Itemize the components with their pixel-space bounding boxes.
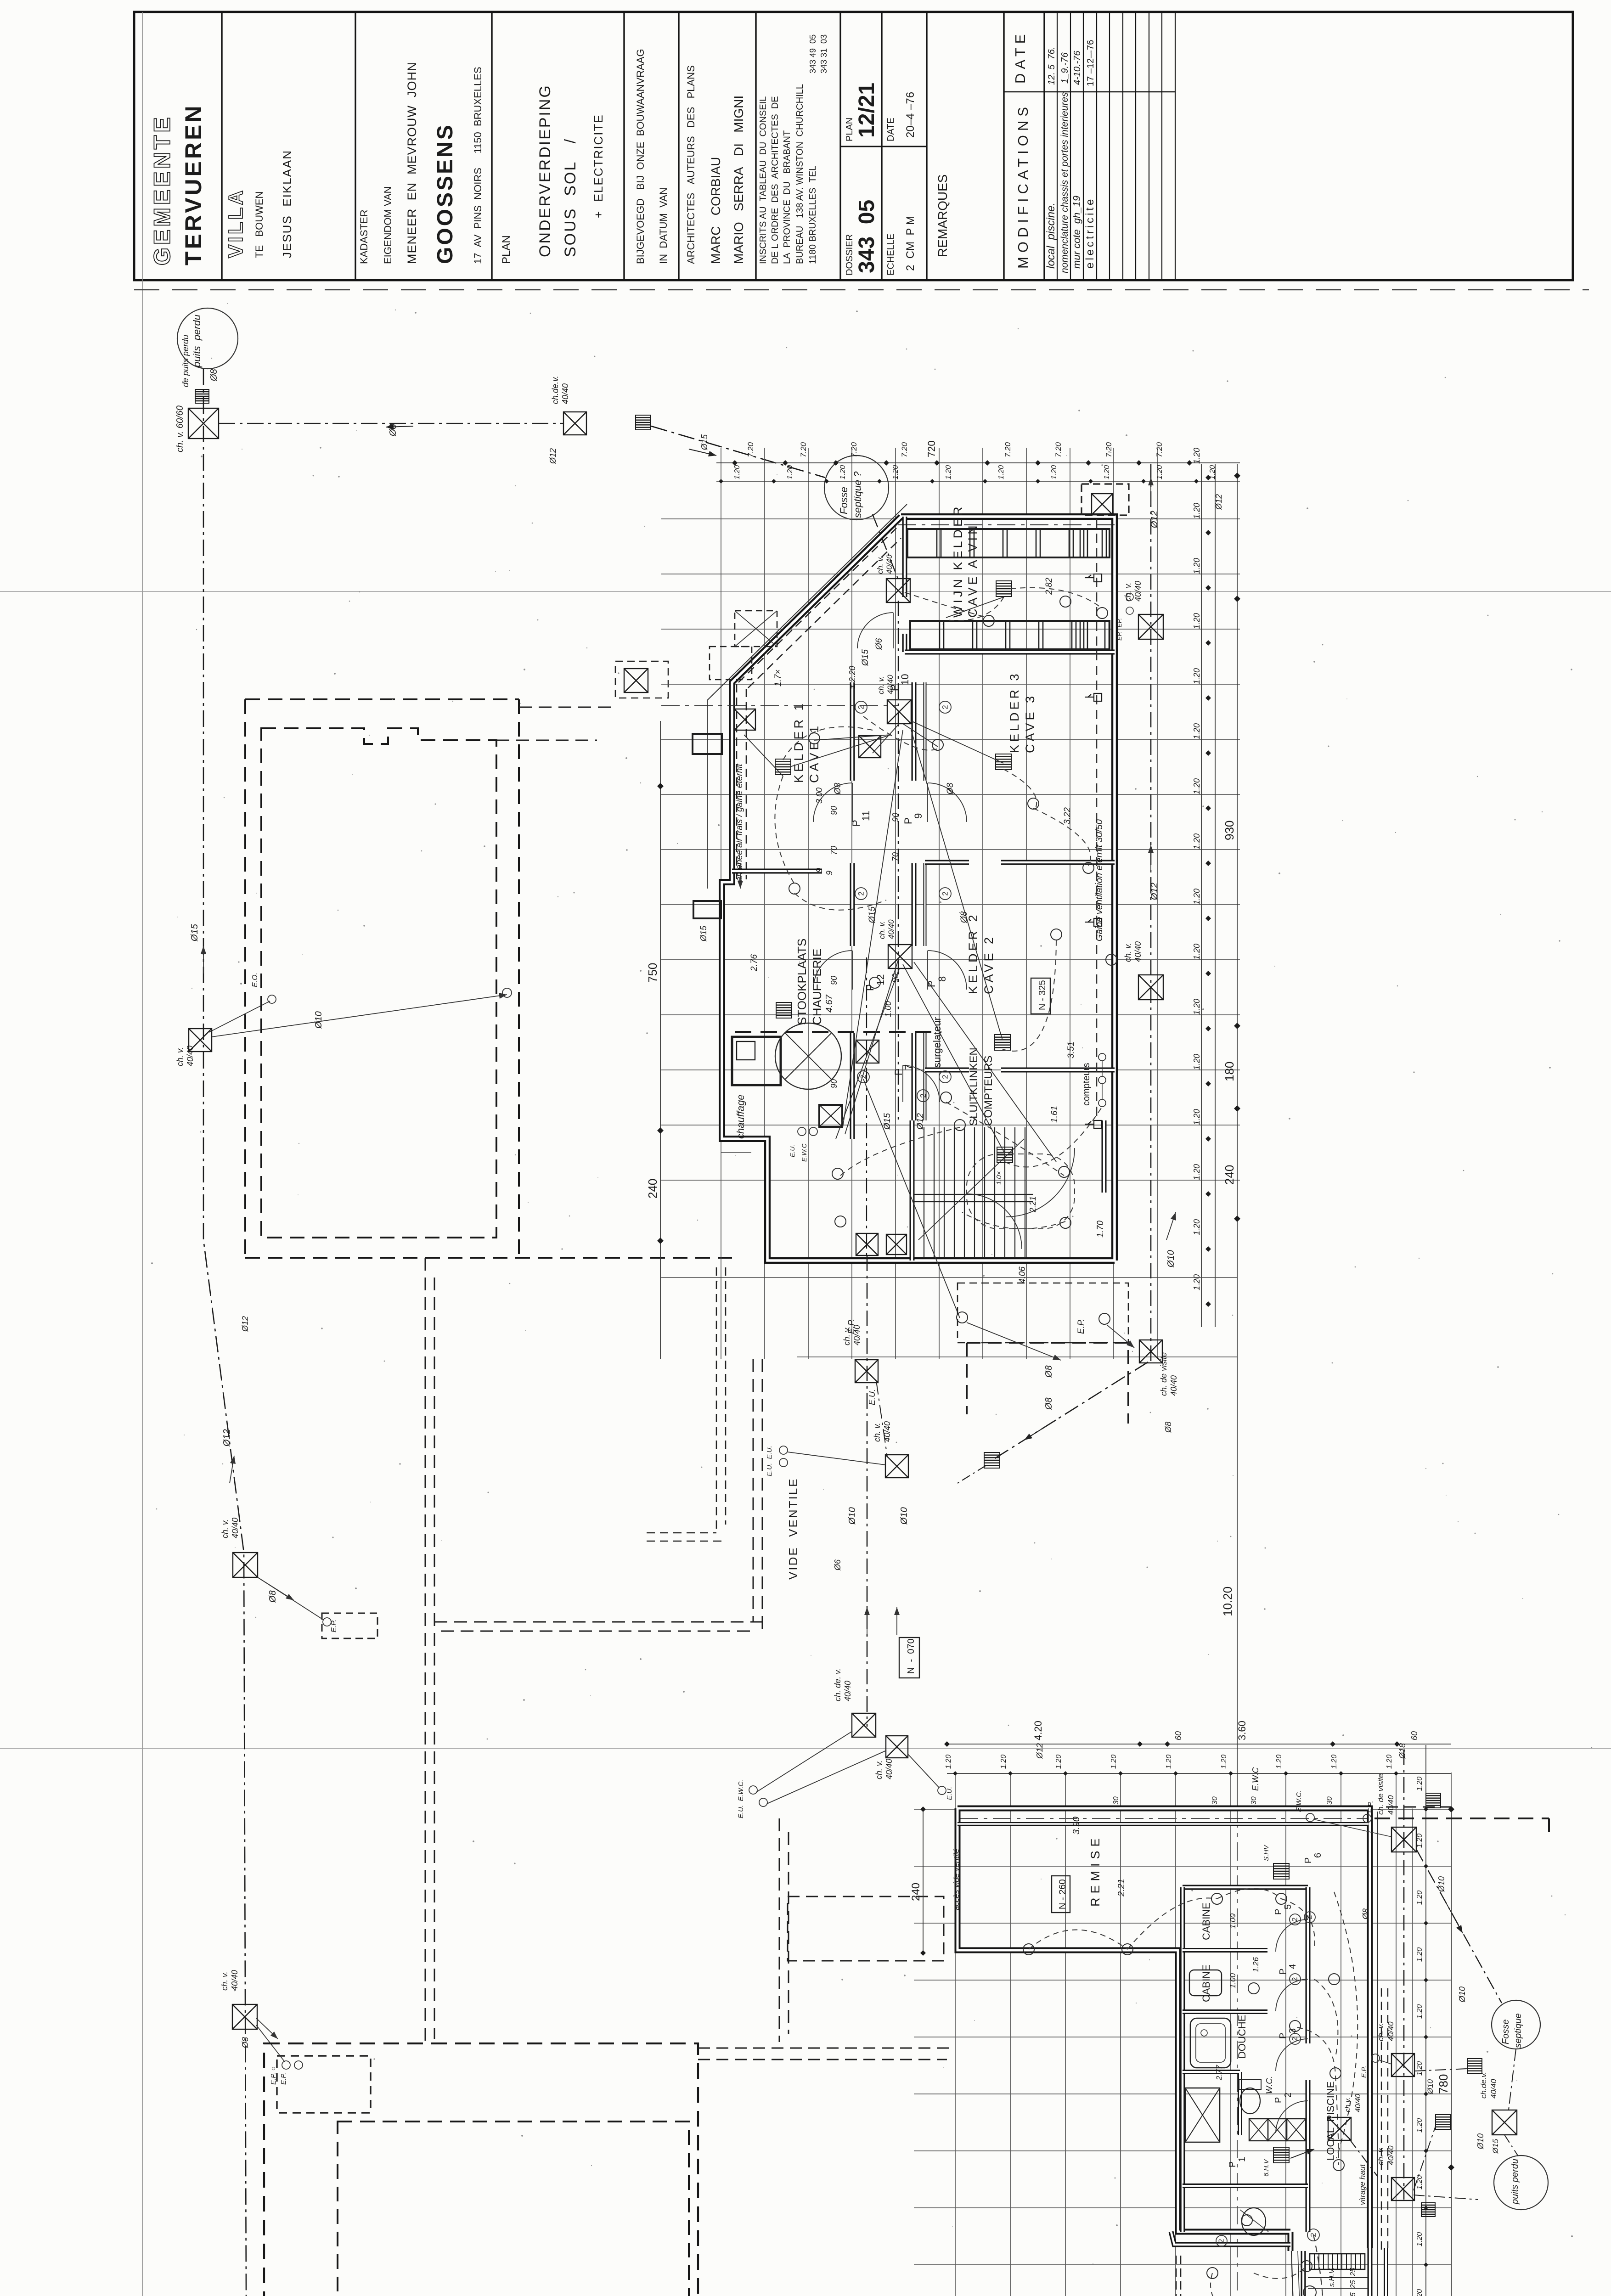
svg-text:Ø10: Ø10 xyxy=(314,1011,324,1029)
svg-text:BIJGEVOEGD BIJ ONZE BOUWAA: BIJGEVOEGD BIJ ONZE BOUWAANVRAAG xyxy=(635,49,646,264)
svg-text:amenée air frais / gaine etern: amenée air frais / gaine eternit xyxy=(735,764,744,882)
svg-text:ch.v.: ch.v. xyxy=(1344,2097,1352,2112)
svg-text:720: 720 xyxy=(926,440,937,457)
svg-text:P: P xyxy=(864,984,876,991)
svg-text:E.U. E.W.C.: E.U. E.W.C. xyxy=(737,1780,745,1818)
svg-text:E.P. ○: E.P. ○ xyxy=(270,2066,277,2085)
svg-text:1.20: 1.20 xyxy=(1000,1755,1008,1769)
svg-text:1.20: 1.20 xyxy=(1192,944,1201,960)
svg-text:1.20: 1.20 xyxy=(1192,999,1201,1015)
svg-text:17 AV PINS NOIRS 1150: 17 AV PINS NOIRS 1150 BRUXELLES xyxy=(472,67,484,264)
svg-text:puits perdu: puits perdu xyxy=(1510,2159,1520,2205)
svg-text:1.20: 1.20 xyxy=(945,465,952,479)
svg-text:E.U.: E.U. xyxy=(789,1145,796,1157)
svg-text:E.P.: E.P. xyxy=(1076,1319,1086,1334)
svg-text:9: 9 xyxy=(815,868,824,872)
svg-text:40/40: 40/40 xyxy=(186,1046,195,1066)
svg-text:20–4 –76: 20–4 –76 xyxy=(904,92,917,138)
svg-text:ch. de. v.: ch. de. v. xyxy=(833,1668,842,1701)
svg-text:SLUITKLINKEN: SLUITKLINKEN xyxy=(968,1047,980,1126)
svg-text:1.20: 1.20 xyxy=(1192,778,1201,794)
svg-text:Ø6: Ø6 xyxy=(833,1559,842,1571)
svg-text:780: 780 xyxy=(1436,2074,1450,2094)
svg-text:1.20: 1.20 xyxy=(1156,465,1164,479)
svg-text:7: 7 xyxy=(903,1064,914,1070)
svg-text:ch. v.: ch. v. xyxy=(175,1047,185,1066)
svg-text:Ø8: Ø8 xyxy=(959,911,969,923)
svg-text:4.06: 4.06 xyxy=(1018,1266,1027,1283)
svg-text:2: 2 xyxy=(941,891,950,895)
svg-text:de puits perdu: de puits perdu xyxy=(181,335,190,387)
svg-text:VIDE VENTILE: VIDE VENTILE xyxy=(786,1478,800,1580)
svg-text:ch. v.: ch. v. xyxy=(1376,2023,1385,2041)
svg-text:ch. de visite: ch. de visite xyxy=(1159,1352,1168,1396)
svg-text:vitrage haut: vitrage haut xyxy=(1358,2164,1367,2205)
svg-text:E.W.C.: E.W.C. xyxy=(1295,1790,1303,1812)
svg-text:Ø12: Ø12 xyxy=(1149,883,1160,900)
svg-text:7.20: 7.20 xyxy=(799,442,808,457)
svg-text:1.20: 1.20 xyxy=(1220,1755,1228,1769)
svg-text:1.00: 1.00 xyxy=(1228,1973,1237,1988)
svg-text:1.20: 1.20 xyxy=(1192,1164,1201,1180)
svg-text:ch. v.: ch. v. xyxy=(1376,2147,1385,2165)
svg-text:1.20: 1.20 xyxy=(1330,1755,1338,1769)
svg-text:3.00: 3.00 xyxy=(815,788,824,804)
svg-text:P: P xyxy=(1278,2033,1288,2039)
svg-text:1.20: 1.20 xyxy=(1416,1834,1424,1848)
svg-text:10.20: 10.20 xyxy=(1221,1587,1234,1616)
svg-text:1.20: 1.20 xyxy=(1192,558,1201,574)
svg-text:E.O.: E.O. xyxy=(251,973,259,987)
svg-text:mur cote gh_19: mur cote gh_19 xyxy=(1071,196,1082,269)
svg-text:2: 2 xyxy=(941,705,950,709)
svg-text:ch. v.: ch. v. xyxy=(842,1326,851,1345)
svg-text:Ø12: Ø12 xyxy=(1035,1743,1044,1759)
svg-text:STOOKPLAATS: STOOKPLAATS xyxy=(795,939,809,1025)
svg-text:1: 1 xyxy=(1237,2157,1247,2162)
svg-text:accès vide ventilé: accès vide ventilé xyxy=(952,1849,961,1910)
svg-text:Ø6: Ø6 xyxy=(874,638,884,650)
svg-text:MENEER EN MEVROUW JOHN: MENEER EN MEVROUW JOHN xyxy=(405,62,419,264)
svg-text:Ø18: Ø18 xyxy=(1398,1743,1407,1759)
svg-text:puits perdu: puits perdu xyxy=(191,315,203,368)
svg-text:30: 30 xyxy=(1211,1796,1219,1805)
svg-text:P: P xyxy=(1303,1857,1313,1863)
svg-text:ch. v.: ch. v. xyxy=(220,1971,229,1991)
svg-text:WIJN KELDER: WIJN KELDER xyxy=(951,504,965,618)
svg-text:40/40: 40/40 xyxy=(1133,941,1143,962)
svg-text:P: P xyxy=(1228,2161,1238,2167)
svg-text:40/40: 40/40 xyxy=(887,919,896,939)
svg-text:KELDER 3: KELDER 3 xyxy=(1008,671,1021,753)
svg-text:1.20: 1.20 xyxy=(1192,1274,1201,1290)
svg-text:40/40: 40/40 xyxy=(886,675,895,694)
svg-text:EP. EP.: EP. EP. xyxy=(1115,618,1123,641)
svg-text:1.00: 1.00 xyxy=(1228,1913,1237,1929)
svg-text:1.20: 1.20 xyxy=(839,465,847,479)
svg-text:1.70: 1.70 xyxy=(1096,1221,1105,1238)
svg-text:40/40: 40/40 xyxy=(1133,581,1143,602)
svg-text:4-10.-76: 4-10.-76 xyxy=(1072,51,1082,85)
svg-text:40/40: 40/40 xyxy=(852,1325,862,1345)
svg-text:Ø10: Ø10 xyxy=(899,1507,909,1525)
svg-text:70: 70 xyxy=(891,852,900,861)
svg-text:Ø15: Ø15 xyxy=(867,906,877,923)
svg-text:90: 90 xyxy=(891,813,900,822)
svg-text:IN DATUM VAN: IN DATUM VAN xyxy=(658,187,669,264)
svg-text:Ø8: Ø8 xyxy=(388,424,398,437)
svg-text:ch. v.: ch. v. xyxy=(877,676,885,694)
svg-text:Ø10: Ø10 xyxy=(1166,1250,1176,1268)
svg-text:E.P.: E.P. xyxy=(1360,2066,1368,2078)
svg-text:P: P xyxy=(1273,1909,1284,1915)
svg-text:1.20: 1.20 xyxy=(733,465,741,479)
svg-text:Ø8: Ø8 xyxy=(209,369,219,382)
svg-text:ch. v.: ch. v. xyxy=(874,1760,884,1779)
svg-text:Ø12: Ø12 xyxy=(241,1316,250,1332)
svg-text:1.20: 1.20 xyxy=(945,1755,952,1769)
svg-text:2.21: 2.21 xyxy=(1116,1879,1127,1897)
svg-text:17 –12–-76: 17 –12–-76 xyxy=(1086,40,1096,86)
svg-text:W.C.: W.C. xyxy=(1265,2076,1274,2094)
svg-text:4.20: 4.20 xyxy=(1032,1721,1044,1740)
svg-text:S.HV: S.HV xyxy=(1262,1844,1270,1861)
svg-text:40/40: 40/40 xyxy=(1354,2094,1362,2112)
svg-text:60: 60 xyxy=(1410,1731,1419,1740)
svg-text:ch. v.: ch. v. xyxy=(873,1423,882,1442)
svg-text:ch. de visite: ch. de visite xyxy=(1376,1773,1385,1815)
svg-text:TE BOUWEN: TE BOUWEN xyxy=(253,191,265,258)
svg-text:40/40: 40/40 xyxy=(230,1970,239,1991)
svg-text:343 31 03: 343 31 03 xyxy=(819,34,828,73)
svg-text:septique ?: septique ? xyxy=(852,471,863,518)
svg-text:Ø8: Ø8 xyxy=(946,782,955,795)
svg-text:P: P xyxy=(1273,2097,1284,2103)
svg-text:5: 5 xyxy=(1283,1904,1293,1909)
svg-text:90: 90 xyxy=(891,974,900,983)
svg-text:1.7×: 1.7× xyxy=(773,669,783,687)
svg-text:E.P.: E.P. xyxy=(1367,1801,1374,1813)
svg-text:Ø15: Ø15 xyxy=(699,925,708,942)
svg-text:electricite: electricite xyxy=(1084,197,1096,269)
svg-text:ch.de.v.: ch.de.v. xyxy=(551,376,560,404)
svg-text:VILLA: VILLA xyxy=(225,188,247,258)
svg-text:surgelateur: surgelateur xyxy=(931,1017,943,1068)
svg-text:1.26: 1.26 xyxy=(1251,1957,1260,1972)
svg-text:40/40: 40/40 xyxy=(885,554,894,574)
svg-text:240: 240 xyxy=(646,1179,659,1199)
svg-text:PLAN: PLAN xyxy=(845,118,855,141)
svg-text:Ø8: Ø8 xyxy=(241,2037,250,2048)
svg-text:ch. v.: ch. v. xyxy=(878,921,886,939)
svg-text:REMARQUES: REMARQUES xyxy=(935,174,950,257)
svg-text:2: 2 xyxy=(1306,1915,1314,1919)
svg-text:90: 90 xyxy=(829,806,839,815)
svg-text:180: 180 xyxy=(1222,1062,1236,1081)
svg-text:1.0×: 1.0× xyxy=(995,1171,1003,1185)
svg-text:70: 70 xyxy=(829,846,839,855)
svg-text:1.20: 1.20 xyxy=(1416,2061,1424,2076)
svg-text:1.20: 1.20 xyxy=(1192,1054,1201,1070)
svg-text:30: 30 xyxy=(1326,1796,1334,1805)
svg-text:1.20: 1.20 xyxy=(1386,1755,1393,1769)
svg-text:E.P.: E.P. xyxy=(280,2073,287,2085)
svg-text:CAVE A VIN: CAVE A VIN xyxy=(966,523,980,618)
svg-text:2: 2 xyxy=(941,1075,950,1079)
svg-text:1.20: 1.20 xyxy=(1416,1947,1424,1962)
svg-text:2 CM P M: 2 CM P M xyxy=(904,216,917,271)
svg-text:1.20: 1.20 xyxy=(1192,503,1201,519)
svg-text:INSCRITS AU TABLEAU DU CONS: INSCRITS AU TABLEAU DU CONSEIL xyxy=(758,96,768,264)
svg-text:MARIO SERRA DI MIGNI: MARIO SERRA DI MIGNI xyxy=(732,96,746,264)
svg-text:1.20: 1.20 xyxy=(997,465,1005,479)
svg-text:BUREAU 138 AV. WINSTON CHUR: BUREAU 138 AV. WINSTON CHURCHILL xyxy=(795,84,805,264)
svg-text:7.20: 7.20 xyxy=(1054,442,1063,457)
svg-text:ARCHITECTES AUTEURS DES: ARCHITECTES AUTEURS DES PLANS xyxy=(685,65,697,264)
svg-text:1.20: 1.20 xyxy=(1416,2289,1424,2296)
svg-text:Ø8: Ø8 xyxy=(1044,1397,1054,1410)
svg-text:1.00: 1.00 xyxy=(884,1001,893,1017)
svg-text:CHAUFFERIE: CHAUFFERIE xyxy=(810,949,824,1025)
svg-text:PLAN: PLAN xyxy=(500,235,513,264)
svg-text:Fosse: Fosse xyxy=(838,487,850,514)
svg-text:1.20: 1.20 xyxy=(1165,1755,1173,1769)
svg-text:750: 750 xyxy=(646,963,659,983)
svg-text:nomenclature chassis et portes: nomenclature chassis et portes interieur… xyxy=(1059,92,1070,273)
svg-text:septique: septique xyxy=(1513,2013,1523,2048)
svg-text:KADASTER: KADASTER xyxy=(358,209,370,264)
svg-text:DATE: DATE xyxy=(1012,30,1028,84)
svg-text:N - 070: N - 070 xyxy=(906,1638,916,1674)
svg-text:DATE: DATE xyxy=(886,118,896,141)
svg-text:1.20: 1.20 xyxy=(1416,2232,1424,2246)
svg-text:Ø10: Ø10 xyxy=(847,1507,857,1525)
svg-text:1.20: 1.20 xyxy=(1192,1219,1201,1235)
svg-text:ch. v.: ch. v. xyxy=(1123,582,1132,602)
svg-text:930: 930 xyxy=(1222,821,1236,840)
svg-text:7.20: 7.20 xyxy=(1155,442,1164,457)
svg-text:2: 2 xyxy=(1309,2233,1318,2237)
svg-text:local piscine.: local piscine. xyxy=(1045,203,1057,269)
svg-text:3.90: 3.90 xyxy=(1071,1817,1082,1835)
svg-text:Ø12: Ø12 xyxy=(222,1429,232,1447)
svg-text:7.20: 7.20 xyxy=(900,442,909,457)
svg-text:SOUS SOL /: SOUS SOL / xyxy=(562,138,579,257)
svg-text:GEMEENTE: GEMEENTE xyxy=(149,114,175,265)
svg-text:Fosse: Fosse xyxy=(1501,2020,1511,2044)
svg-text:8: 8 xyxy=(936,976,948,982)
svg-text:7.20: 7.20 xyxy=(1104,442,1113,457)
svg-text:Ø12: Ø12 xyxy=(916,1113,925,1130)
svg-text:Ø10: Ø10 xyxy=(1458,1986,1467,2003)
svg-text:40/40: 40/40 xyxy=(1386,2145,1395,2165)
svg-text:TERVUEREN: TERVUEREN xyxy=(180,104,206,265)
svg-text:Ø10: Ø10 xyxy=(1426,2079,1435,2094)
svg-text:Ø12: Ø12 xyxy=(1149,511,1160,529)
svg-text:Ø15: Ø15 xyxy=(861,649,870,666)
svg-text:9: 9 xyxy=(825,871,834,875)
svg-text:2: 2 xyxy=(919,1093,928,1097)
svg-text:E.U.: E.U. xyxy=(946,1787,953,1800)
svg-text:7.20: 7.20 xyxy=(1003,442,1012,457)
svg-text:ch. v.: ch. v. xyxy=(1123,943,1132,962)
svg-text:1.20: 1.20 xyxy=(1416,2175,1424,2189)
svg-text:1.20: 1.20 xyxy=(1416,2004,1424,2019)
svg-text:1.20: 1.20 xyxy=(1192,833,1201,850)
svg-text:40/40: 40/40 xyxy=(1386,1795,1395,1815)
svg-text:6.H.V: 6.H.V xyxy=(1262,2158,1270,2177)
svg-text:DOSSIER: DOSSIER xyxy=(845,234,855,276)
svg-text:MARC CORBIAU: MARC CORBIAU xyxy=(709,157,723,264)
svg-text:Ø10: Ø10 xyxy=(1437,1876,1446,1892)
svg-text:E.U. E.U.: E.U. E.U. xyxy=(766,1446,773,1476)
svg-text:Ø8: Ø8 xyxy=(833,782,843,795)
svg-text:2: 2 xyxy=(1218,2239,1226,2243)
svg-text:Ø15: Ø15 xyxy=(883,1113,892,1130)
svg-text:N - 260: N - 260 xyxy=(1058,1879,1068,1909)
svg-text:40/40: 40/40 xyxy=(231,1518,240,1538)
svg-text:4: 4 xyxy=(1288,1964,1298,1969)
svg-text:1.20: 1.20 xyxy=(1050,465,1058,479)
svg-text:Ø10: Ø10 xyxy=(1476,2133,1485,2150)
svg-text:E.W.C: E.W.C xyxy=(1251,1767,1260,1791)
svg-text:Ø15: Ø15 xyxy=(1491,2138,1500,2154)
svg-text:s.H.V.: s.H.V. xyxy=(1328,2268,1336,2287)
svg-text:DOUCHE: DOUCHE xyxy=(1236,2015,1248,2059)
svg-text:1180 BRUXELLES TEL: 1180 BRUXELLES TEL xyxy=(808,166,818,264)
svg-text:CABINE: CABINE xyxy=(1200,1902,1212,1940)
svg-text:ECHELLE: ECHELLE xyxy=(886,234,896,276)
svg-text:DE L ORDRE DES ARCHITECTES: DE L ORDRE DES ARCHITECTES DE xyxy=(770,96,780,264)
svg-text:90: 90 xyxy=(829,976,839,985)
svg-text:4.67: 4.67 xyxy=(824,994,834,1013)
svg-text:2.77: 2.77 xyxy=(1215,2065,1223,2081)
svg-text:JESUS EIKLAAN: JESUS EIKLAAN xyxy=(280,150,294,258)
svg-text:Ø12: Ø12 xyxy=(1214,494,1223,510)
svg-text:Ø15: Ø15 xyxy=(190,923,200,942)
svg-text:3.22: 3.22 xyxy=(1063,807,1072,824)
svg-text:+ ELECTRICITE: + ELECTRICITE xyxy=(591,114,605,218)
svg-text:1.20: 1.20 xyxy=(1192,613,1201,629)
svg-text:40/40: 40/40 xyxy=(1386,2021,1395,2041)
svg-text:ch. v. 60/60: ch. v. 60/60 xyxy=(175,405,185,452)
svg-text:40/40: 40/40 xyxy=(843,1681,852,1701)
svg-text:Ø8: Ø8 xyxy=(1164,1422,1173,1433)
svg-text:ch. v.: ch. v. xyxy=(220,1519,230,1538)
svg-text:30: 30 xyxy=(1250,1796,1258,1805)
svg-text:ch. v.: ch. v. xyxy=(876,556,884,574)
svg-text:3.60: 3.60 xyxy=(1236,1721,1248,1740)
svg-text:40/40: 40/40 xyxy=(1169,1375,1178,1396)
svg-text:P: P xyxy=(1278,1969,1288,1975)
svg-text:1.20: 1.20 xyxy=(1416,2118,1424,2133)
svg-text:CABINE: CABINE xyxy=(1200,1964,1212,2002)
svg-text:LA PROVINCE DU BRABANT: LA PROVINCE DU BRABANT xyxy=(782,130,792,264)
svg-text:1.20: 1.20 xyxy=(892,465,900,479)
svg-text:1.20: 1.20 xyxy=(1275,1755,1283,1769)
svg-text:11: 11 xyxy=(860,810,872,821)
svg-text:GOOSSENS: GOOSSENS xyxy=(433,123,457,264)
svg-text:40/40: 40/40 xyxy=(884,1759,894,1779)
svg-text:1.20: 1.20 xyxy=(786,465,794,479)
svg-text:1.20: 1.20 xyxy=(1192,889,1201,905)
svg-text:1.20: 1.20 xyxy=(1103,465,1111,479)
svg-text:2: 2 xyxy=(1283,2093,1293,2098)
svg-text:1_9.-76: 1_9.-76 xyxy=(1060,52,1070,84)
svg-text:N - 325: N - 325 xyxy=(1037,980,1048,1010)
svg-text:Ø12: Ø12 xyxy=(548,448,558,464)
svg-text:REMISE: REMISE xyxy=(1088,1834,1102,1907)
svg-text:343 05: 343 05 xyxy=(855,200,879,273)
svg-text:Ø8: Ø8 xyxy=(1044,1365,1054,1378)
svg-text:12/21: 12/21 xyxy=(855,83,879,138)
svg-text:MODIFICATIONS: MODIFICATIONS xyxy=(1015,103,1031,269)
svg-text:3.51: 3.51 xyxy=(1066,1041,1076,1058)
svg-text:1.20: 1.20 xyxy=(1110,1755,1118,1769)
svg-text:343 49 05: 343 49 05 xyxy=(808,34,817,73)
svg-text:1.20: 1.20 xyxy=(1192,448,1201,464)
svg-text:Gaine ventilation eternit 30/5: Gaine ventilation eternit 30/50 xyxy=(1094,819,1104,941)
svg-text:30: 30 xyxy=(1112,1796,1120,1805)
svg-text:9: 9 xyxy=(913,813,924,819)
svg-text:1.20: 1.20 xyxy=(1416,1891,1424,1905)
svg-text:2.82: 2.82 xyxy=(1044,578,1054,595)
svg-text:240: 240 xyxy=(1222,1165,1236,1185)
svg-text:60: 60 xyxy=(1174,1731,1183,1740)
svg-text:240: 240 xyxy=(910,1883,922,1901)
svg-text:EIGENDOM VAN: EIGENDOM VAN xyxy=(382,186,394,264)
svg-text:6: 6 xyxy=(1313,1853,1323,1858)
svg-text:1.61: 1.61 xyxy=(1050,1106,1059,1123)
svg-text:12. 5 76.: 12. 5 76. xyxy=(1047,47,1057,85)
svg-text:12: 12 xyxy=(875,974,886,985)
svg-text:40/40: 40/40 xyxy=(561,383,570,404)
svg-text:E.W.C: E.W.C xyxy=(800,1143,808,1162)
svg-text:chauffage: chauffage xyxy=(735,1094,746,1139)
svg-text:10: 10 xyxy=(899,674,911,685)
svg-text:1.20: 1.20 xyxy=(1416,1777,1424,1791)
svg-text:25 25 25: 25 25 25 xyxy=(1349,2268,1357,2296)
svg-text:7.20: 7.20 xyxy=(746,442,755,457)
svg-text:ONDERVERDIEPING: ONDERVERDIEPING xyxy=(536,84,554,257)
svg-text:Ø15: Ø15 xyxy=(700,434,709,450)
svg-text:40/40: 40/40 xyxy=(1489,2079,1498,2099)
svg-text:Ø8: Ø8 xyxy=(268,1590,278,1603)
svg-text:1.20: 1.20 xyxy=(1055,1755,1063,1769)
svg-text:1.20: 1.20 xyxy=(1192,668,1201,684)
svg-text:ch.de.v.: ch.de.v. xyxy=(1479,2072,1488,2099)
svg-text:LOCAL PISCINE: LOCAL PISCINE xyxy=(1325,2082,1336,2161)
svg-text:E.P.: E.P. xyxy=(330,1620,338,1632)
svg-text:1.20: 1.20 xyxy=(1192,1109,1201,1125)
svg-text:CAVE 3: CAVE 3 xyxy=(1023,693,1037,753)
svg-text:KELDER 1: KELDER 1 xyxy=(792,701,805,783)
svg-text:E.U.: E.U. xyxy=(867,1389,877,1405)
svg-text:90: 90 xyxy=(829,1079,839,1088)
svg-text:CAVE 2: CAVE 2 xyxy=(982,934,996,994)
svg-text:compteurs: compteurs xyxy=(1082,1063,1092,1106)
svg-text:1.20: 1.20 xyxy=(1192,723,1201,739)
svg-text:2: 2 xyxy=(857,891,866,895)
svg-text:2.76: 2.76 xyxy=(749,954,759,972)
svg-text:Ø8: Ø8 xyxy=(1361,1908,1370,1920)
svg-text:± 2.20: ± 2.20 xyxy=(848,666,857,689)
svg-text:7.20: 7.20 xyxy=(850,442,858,457)
